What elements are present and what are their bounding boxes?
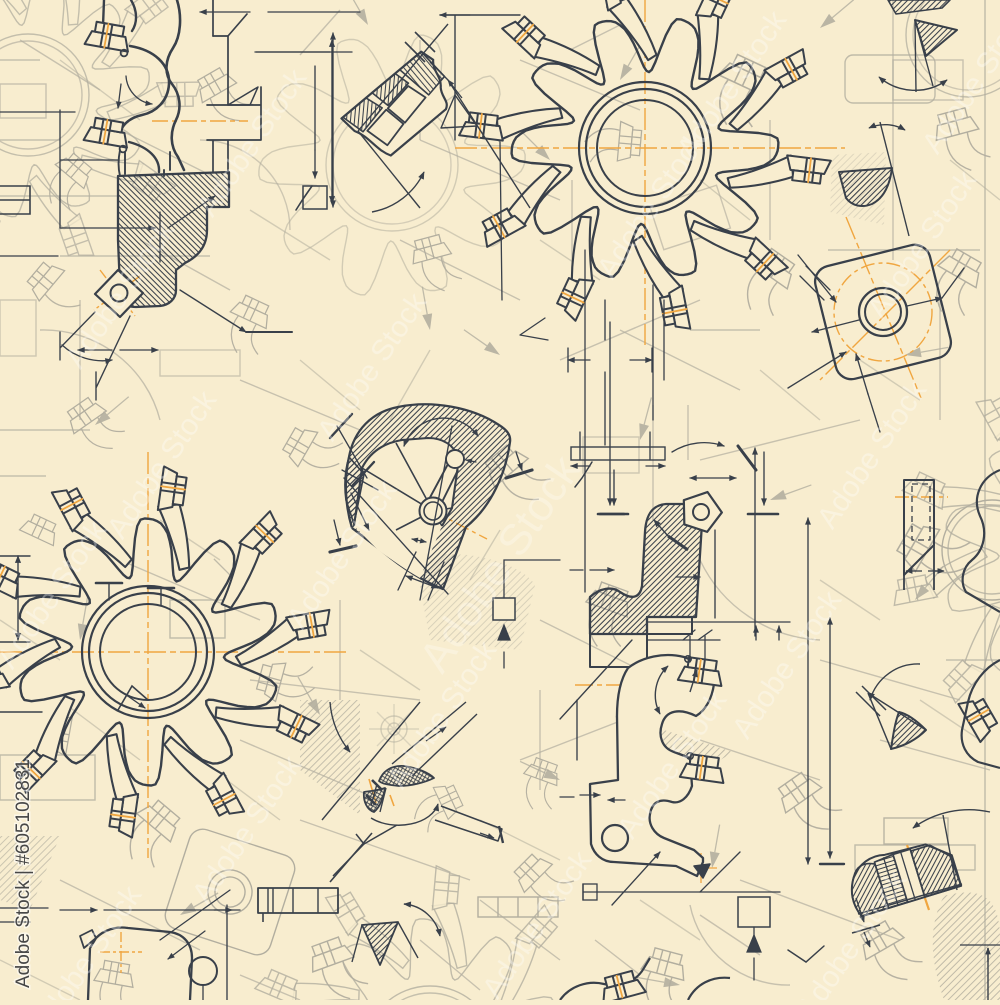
svg-text:Adobe Stock | #605102831: Adobe Stock | #605102831: [13, 759, 34, 988]
